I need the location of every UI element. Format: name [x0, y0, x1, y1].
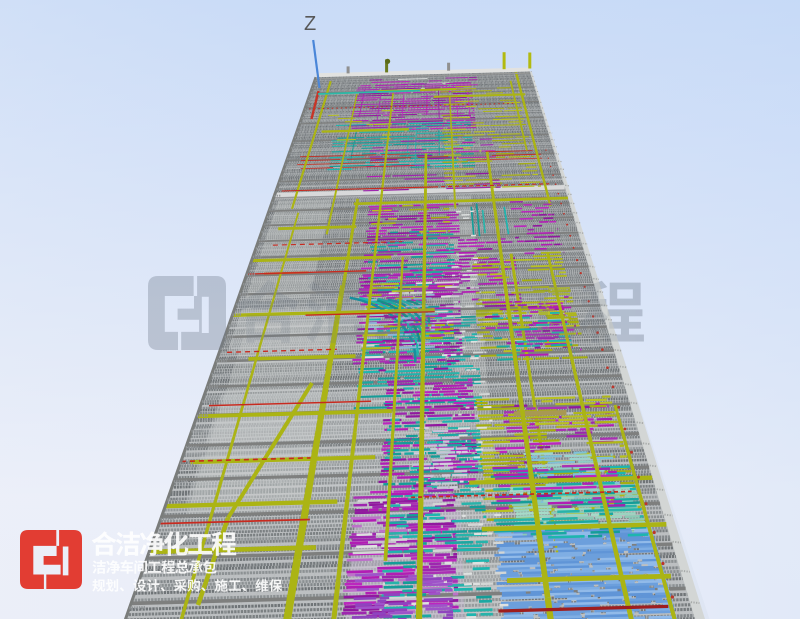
svg-text:Z: Z: [304, 13, 316, 35]
